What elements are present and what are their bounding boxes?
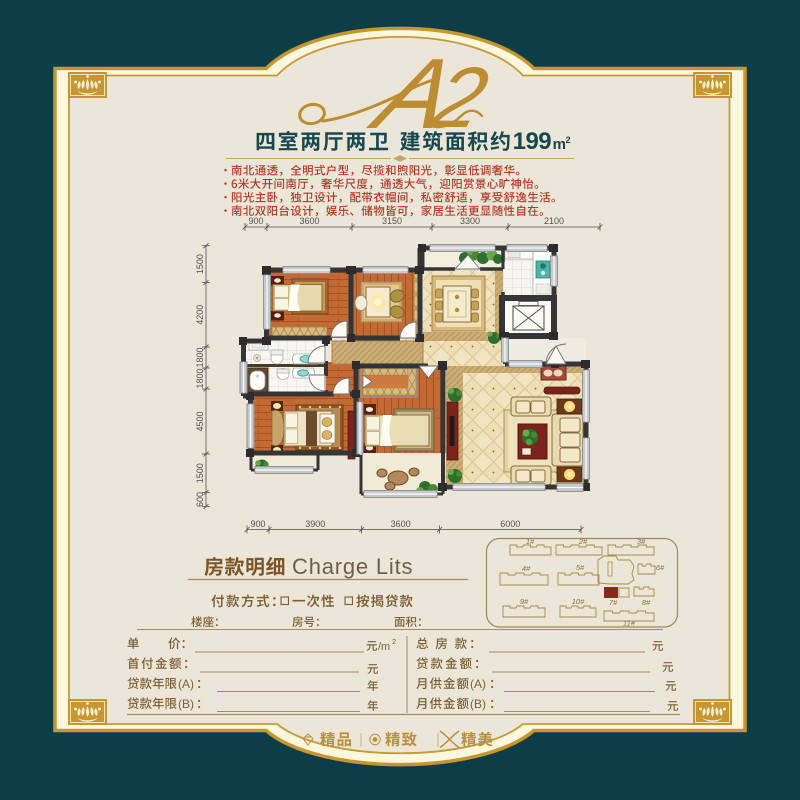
svg-text:1800: 1800 bbox=[195, 368, 205, 388]
svg-text:2: 2 bbox=[566, 135, 571, 145]
svg-text:2#: 2# bbox=[578, 537, 588, 546]
svg-text:m: m bbox=[553, 136, 566, 153]
svg-text:(B): (B) bbox=[470, 697, 486, 711]
svg-text:3300: 3300 bbox=[460, 216, 480, 226]
svg-text:4500: 4500 bbox=[195, 411, 205, 431]
svg-text:(B): (B) bbox=[178, 697, 194, 711]
svg-text:2100: 2100 bbox=[544, 216, 564, 226]
svg-text:600: 600 bbox=[195, 492, 205, 507]
svg-text:1#: 1# bbox=[526, 537, 535, 546]
svg-text:3#: 3# bbox=[637, 537, 646, 546]
svg-text:Charge Lits: Charge Lits bbox=[292, 554, 413, 579]
svg-text:/m: /m bbox=[378, 641, 390, 653]
svg-text:11#: 11# bbox=[623, 619, 636, 628]
svg-text:1500: 1500 bbox=[195, 463, 205, 483]
svg-text:6000: 6000 bbox=[500, 519, 520, 529]
svg-text:9#: 9# bbox=[520, 597, 529, 606]
svg-text:3150: 3150 bbox=[382, 216, 402, 226]
svg-text:(A): (A) bbox=[178, 677, 194, 691]
svg-text:5#: 5# bbox=[576, 563, 585, 572]
svg-text:8#: 8# bbox=[642, 598, 651, 607]
svg-text:6#: 6# bbox=[656, 563, 665, 572]
svg-text:3900: 3900 bbox=[305, 519, 325, 529]
svg-text:900: 900 bbox=[248, 216, 263, 226]
svg-text:3600: 3600 bbox=[299, 216, 319, 226]
svg-text:199: 199 bbox=[513, 128, 552, 155]
svg-text:10#: 10# bbox=[572, 597, 585, 606]
svg-text:(A): (A) bbox=[470, 677, 486, 691]
svg-text:900: 900 bbox=[250, 519, 265, 529]
svg-text:3600: 3600 bbox=[391, 519, 411, 529]
svg-text:7#: 7# bbox=[609, 598, 618, 607]
svg-text:2: 2 bbox=[392, 637, 396, 646]
svg-text:1500: 1500 bbox=[195, 254, 205, 274]
svg-text:1800: 1800 bbox=[195, 347, 205, 367]
svg-text:4#: 4# bbox=[522, 564, 531, 573]
svg-text:4200: 4200 bbox=[195, 305, 205, 325]
